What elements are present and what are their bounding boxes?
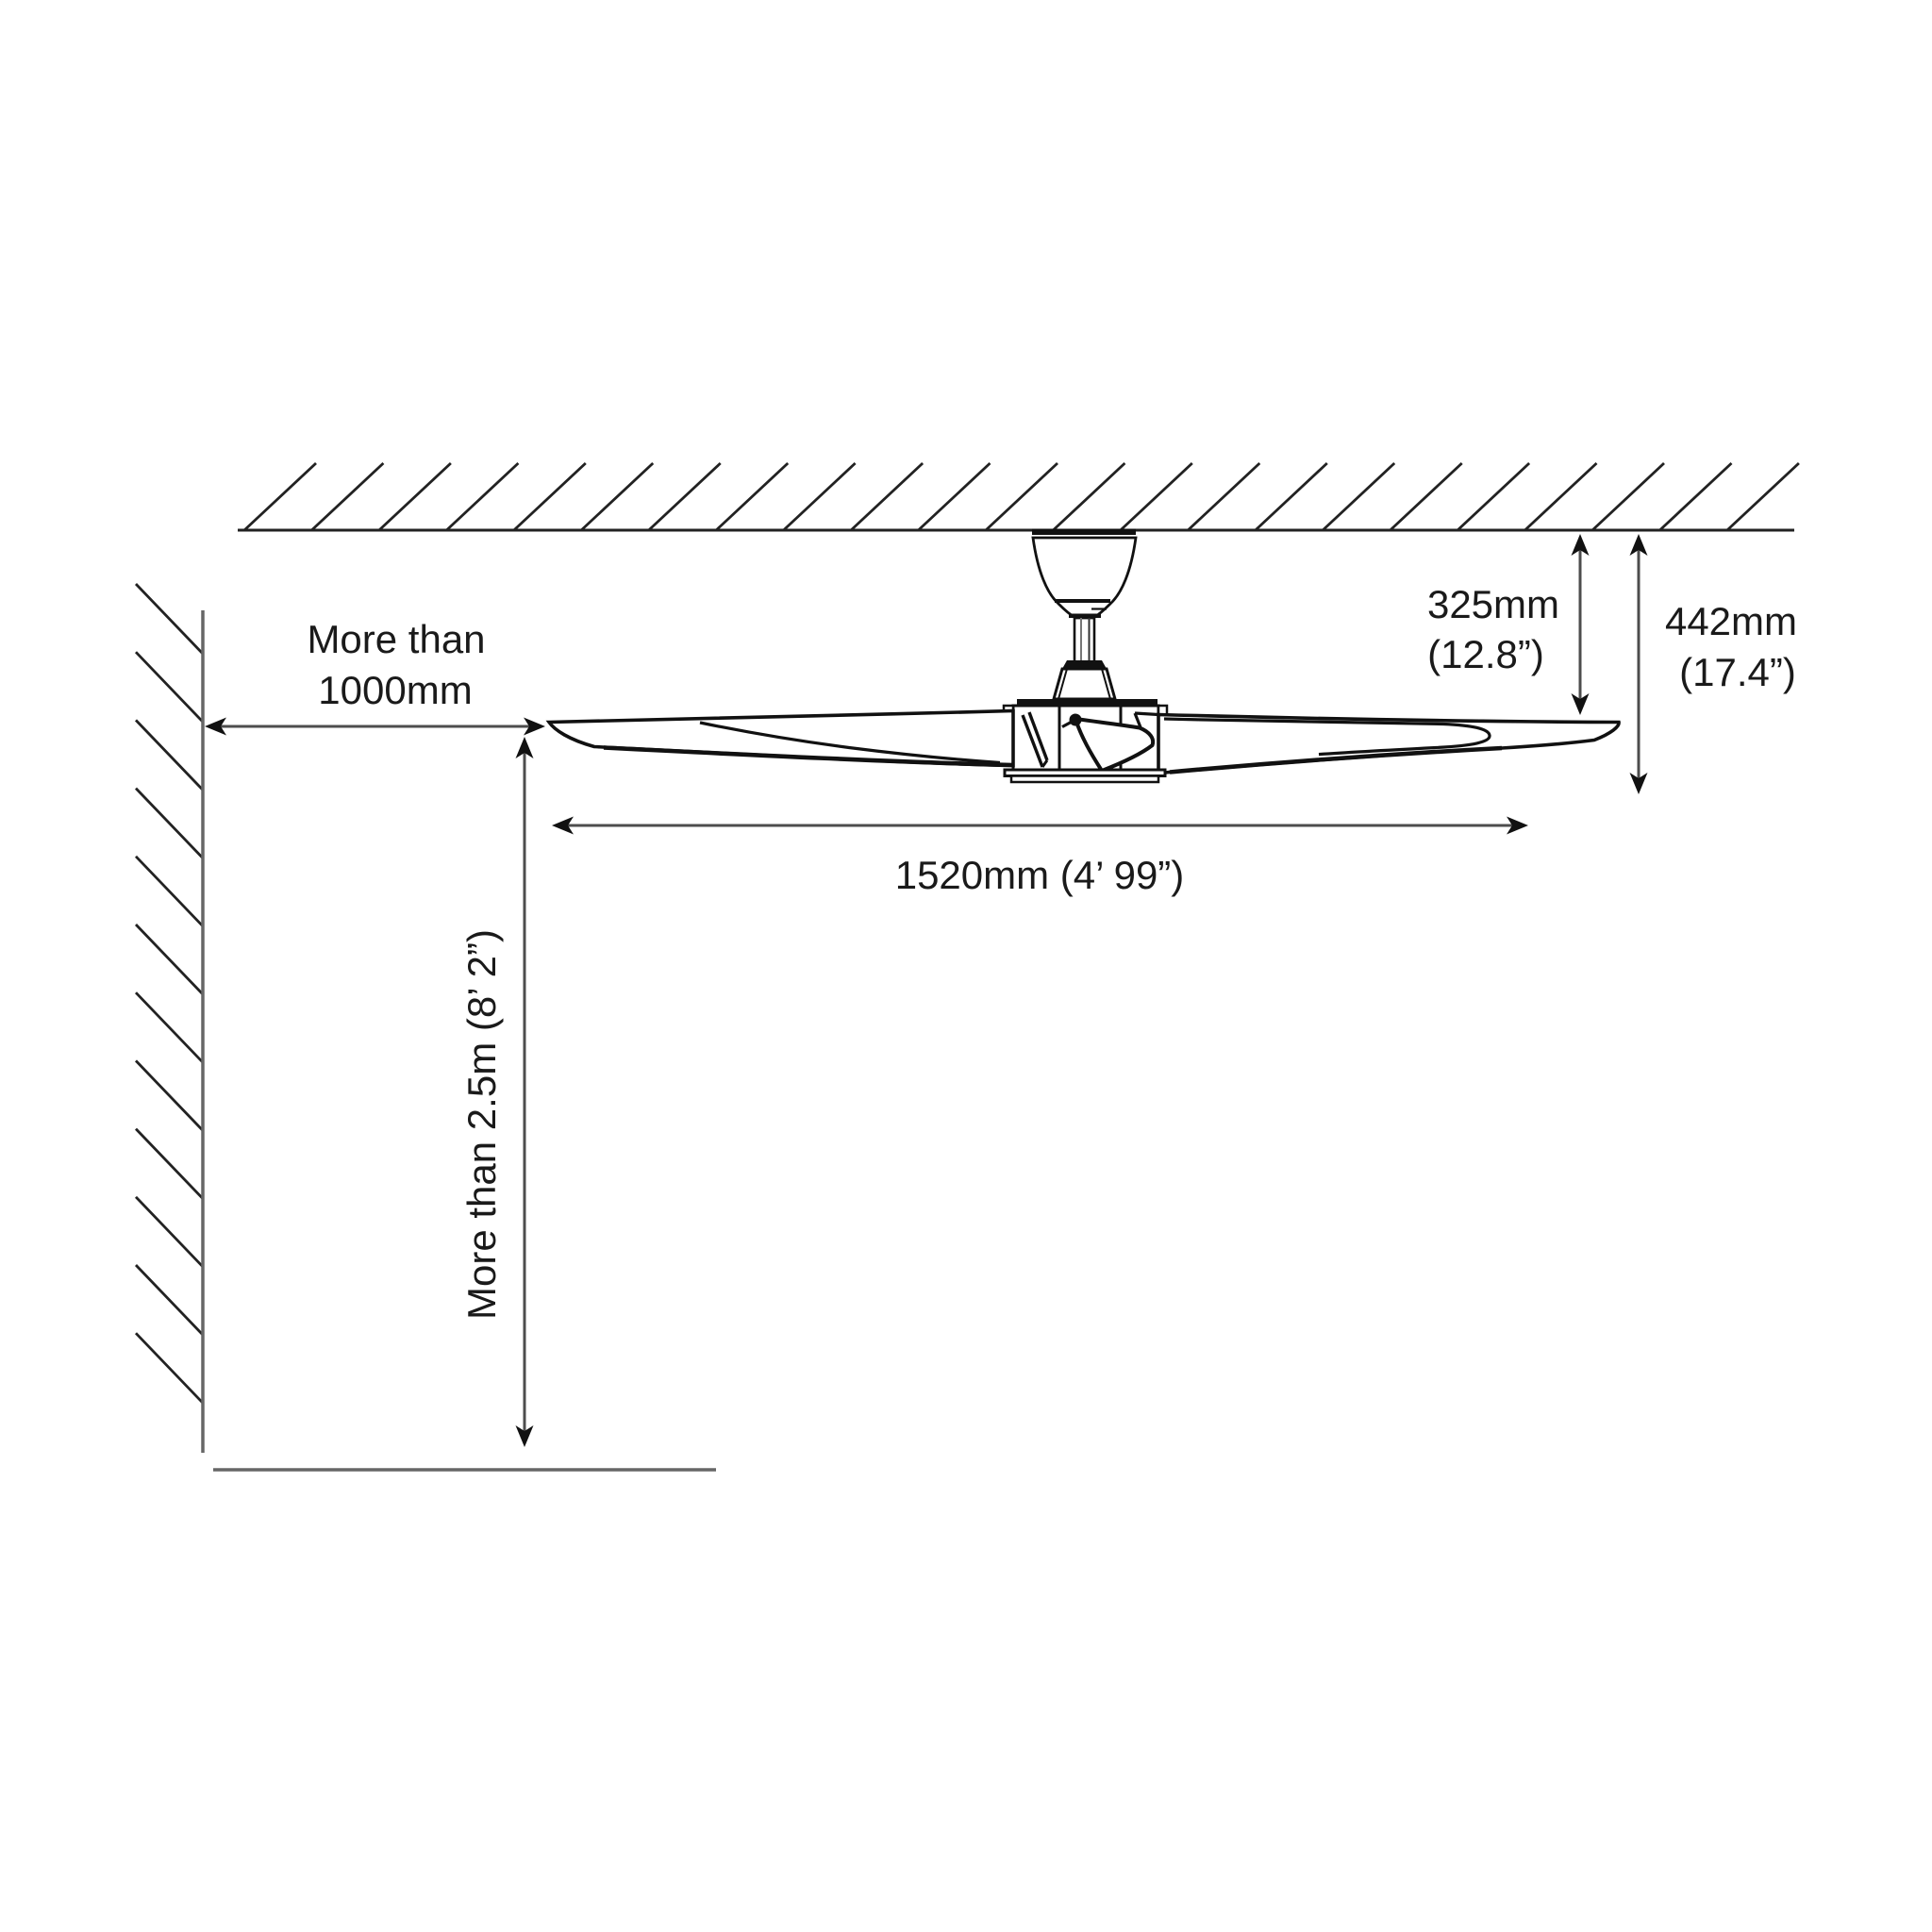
svg-text:325mm: 325mm — [1427, 582, 1559, 626]
svg-text:(17.4”): (17.4”) — [1679, 650, 1796, 694]
svg-text:More than 2.5m (8’ 2”): More than 2.5m (8’ 2”) — [459, 929, 504, 1320]
svg-text:1520mm (4’ 99”): 1520mm (4’ 99”) — [895, 853, 1185, 897]
svg-text:(12.8”): (12.8”) — [1427, 632, 1544, 676]
svg-text:1000mm: 1000mm — [318, 668, 472, 712]
svg-text:More than: More than — [307, 617, 485, 661]
svg-text:442mm: 442mm — [1665, 599, 1797, 643]
